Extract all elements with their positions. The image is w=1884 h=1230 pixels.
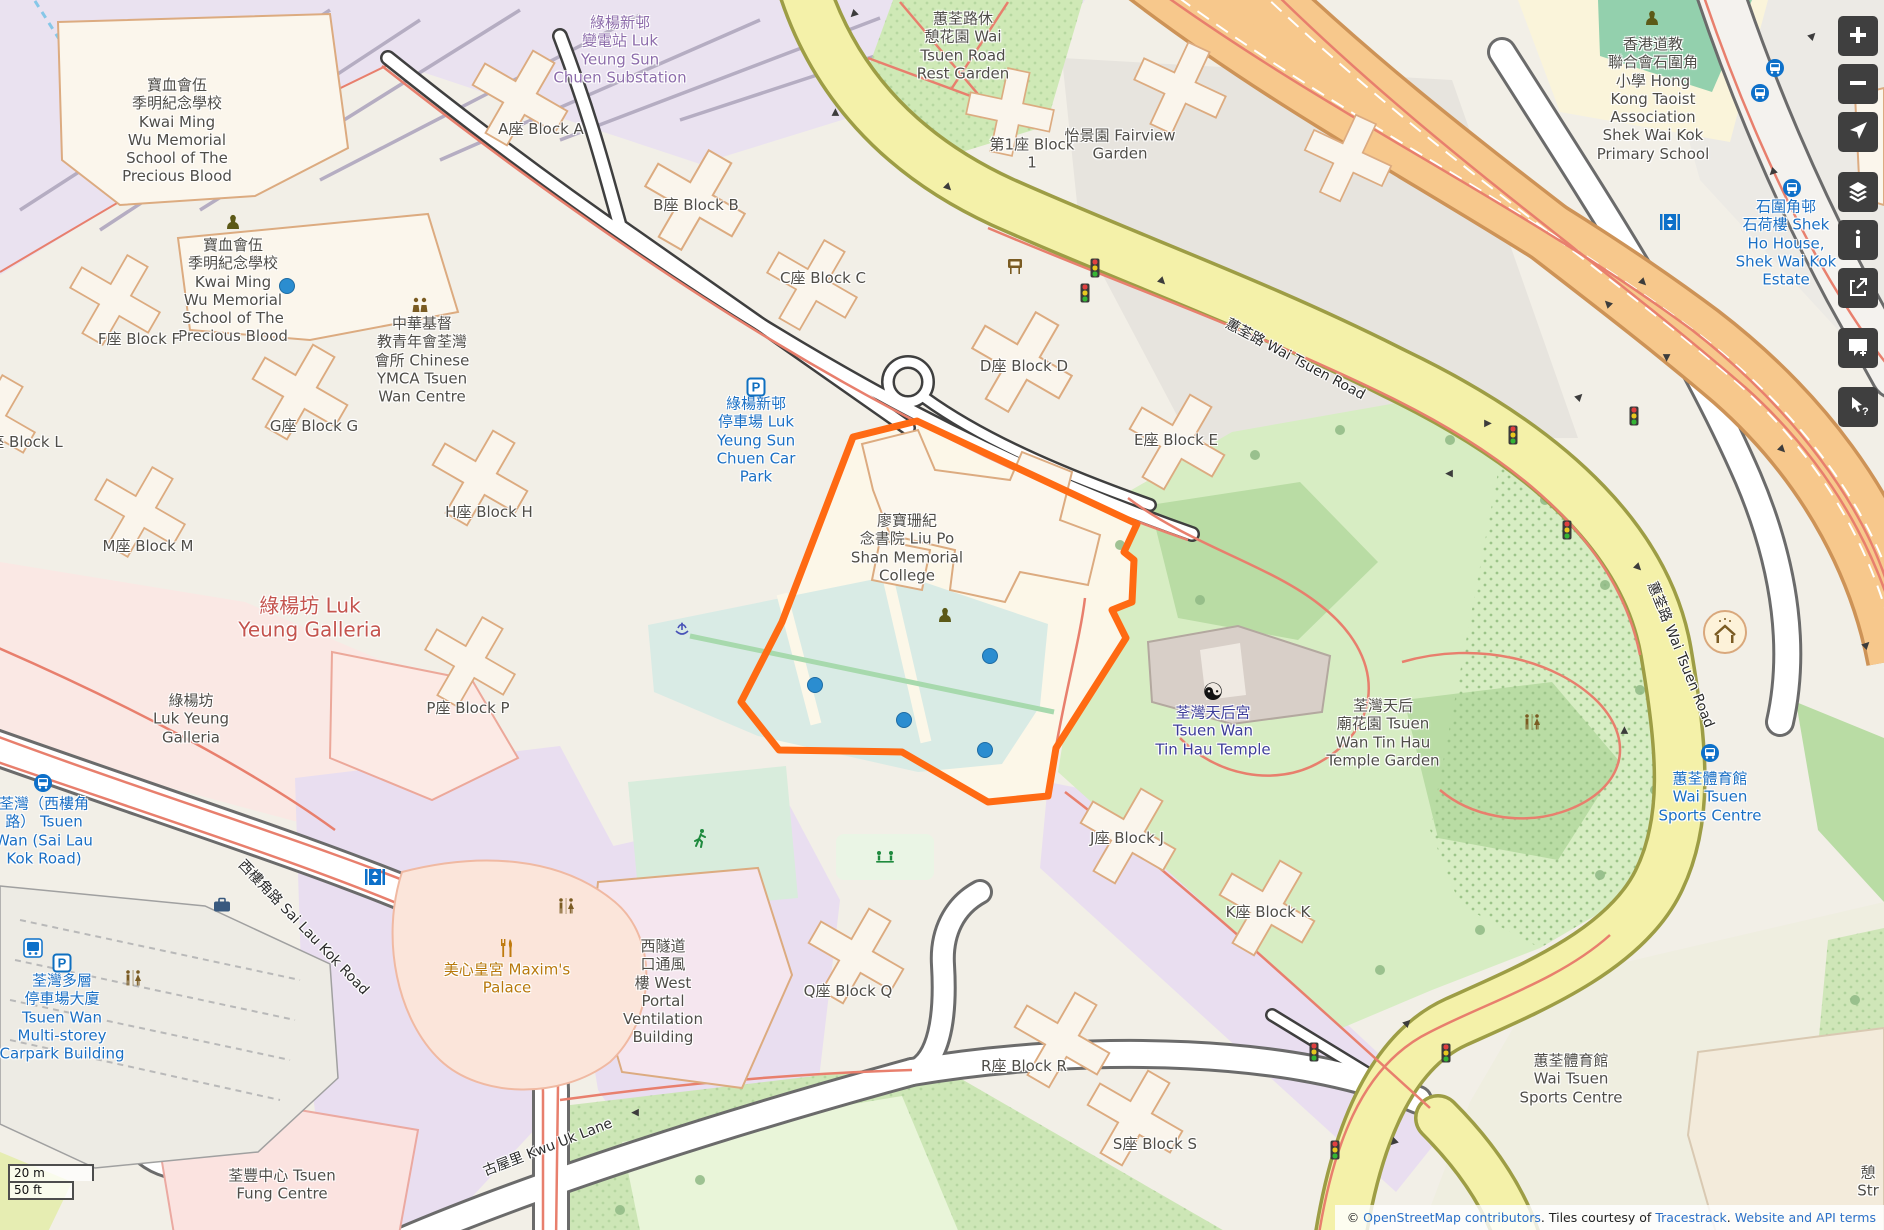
scale-bar: 20 m 50 ft <box>8 1164 94 1200</box>
label-block-l: 座 Block L <box>0 433 63 451</box>
restaurant-icon <box>499 939 515 957</box>
yin-yang-icon: ☯ <box>1202 680 1224 704</box>
label-block-s: S座 Block S <box>1113 1135 1197 1153</box>
label-block-e: E座 Block E <box>1134 431 1218 449</box>
map-marker-dot <box>279 278 295 294</box>
traffic-signal-icon <box>1563 521 1572 540</box>
traffic-signal-icon <box>1331 1141 1340 1160</box>
bus-stop-icon <box>1750 83 1770 103</box>
school-icon <box>936 607 954 623</box>
noticeboard-icon <box>1007 258 1023 274</box>
label-shek-ho-house: 石圍角邨石荷樓 ShekHo House,Shek Wai KokEstate <box>1736 197 1837 288</box>
label-block-m: M座 Block M <box>103 537 194 555</box>
label-taoist-primary-school: 香港道教聯合會石圍角小學 HongKong TaoistAssociationS… <box>1597 35 1710 163</box>
scale-imperial: 50 ft <box>8 1181 74 1200</box>
oneway-arrow-icon: ▶ <box>1661 354 1671 362</box>
label-substation: 綠楊新邨變電站 LukYeung SunChuen Substation <box>553 13 686 86</box>
label-partial-street: 憩Str <box>1857 1164 1879 1201</box>
label-block-g: G座 Block G <box>270 417 358 435</box>
attribution-bar: © OpenStreetMap contributors. Tiles cour… <box>1335 1205 1884 1230</box>
svg-text:P: P <box>58 956 67 971</box>
school-icon <box>224 214 242 230</box>
query-features-button[interactable]: ? <box>1838 387 1878 427</box>
add-note-button[interactable] <box>1838 328 1878 368</box>
parking-icon: P <box>747 378 766 397</box>
note-bubble-icon <box>1847 336 1869 361</box>
label-liu-po-shan-college: 廖寶珊紀念書院 Liu PoShan MemorialCollege <box>851 511 963 584</box>
label-luk-yeung-car-park: 綠楊新邨停車場 LukYeung SunChuen CarPark <box>717 394 796 485</box>
label-block-c: C座 Block C <box>780 269 866 287</box>
label-block-f: F座 Block F <box>98 330 180 348</box>
layers-button[interactable] <box>1838 172 1878 212</box>
traffic-signal-icon <box>1442 1044 1451 1063</box>
svg-text:P: P <box>752 380 761 395</box>
label-tin-hau-temple-garden: 荃灣天后廟花園 TsuenWan Tin HauTemple Garden <box>1326 696 1439 769</box>
shelter-icon <box>1702 609 1748 655</box>
label-west-portal-ventilation: 西隧道口通風樓 WestPortalVentilationBuilding <box>623 937 703 1047</box>
scale-metric: 20 m <box>8 1164 94 1181</box>
label-block-k: K座 Block K <box>1226 903 1311 921</box>
oneway-arrow-icon: ▶ <box>1445 468 1453 478</box>
playground-icon <box>874 848 896 864</box>
map-marker-dot <box>807 677 823 693</box>
attribution-middle: . Tiles courtesy of <box>1541 1210 1655 1225</box>
show-my-location-button[interactable] <box>1838 112 1878 152</box>
zoom-in-button[interactable] <box>1838 16 1878 56</box>
map-key-button[interactable] <box>1838 220 1878 260</box>
community-centre-icon <box>409 297 431 313</box>
label-block-d: D座 Block D <box>980 357 1068 375</box>
zoom-out-button[interactable] <box>1838 64 1878 104</box>
traffic-signal-icon <box>1630 407 1639 426</box>
fountain-icon <box>672 621 692 637</box>
osm-contributors-link[interactable]: OpenStreetMap contributors <box>1363 1210 1541 1225</box>
label-block-r: R座 Block R <box>981 1057 1067 1075</box>
label-wai-tsuen-sports-centre-stop: 蕙荃體育館Wai TsuenSports Centre <box>1658 770 1761 825</box>
bus-stop-icon <box>1765 58 1785 78</box>
locate-arrow-icon <box>1847 120 1869 145</box>
map-marker-dot <box>982 648 998 664</box>
elevator-icon <box>365 869 385 885</box>
running-track-icon <box>691 828 709 848</box>
traffic-signal-icon <box>1091 259 1100 278</box>
traffic-signal-icon <box>1509 426 1518 445</box>
attribution-prefix: © <box>1347 1210 1363 1225</box>
attribution-separator: . <box>1727 1210 1735 1225</box>
label-block-q: Q座 Block Q <box>804 982 893 1000</box>
map-viewport[interactable]: 寶血會伍季明紀念學校Kwai MingWu MemorialSchool of … <box>0 0 1884 1230</box>
tracestrack-link[interactable]: Tracestrack <box>1655 1210 1726 1225</box>
label-multistorey-carpark: 荃灣多層停車場大廈Tsuen WanMulti-storeyCarpark Bu… <box>0 971 125 1062</box>
label-tsuen-fung-centre: 荃豐中心 TsuenFung Centre <box>228 1167 336 1204</box>
oneway-arrow-icon: ▶ <box>831 108 841 116</box>
svg-text:?: ? <box>1862 406 1869 417</box>
label-ymca: 中華基督教青年會荃灣會所 ChineseYMCA TsuenWan Centre <box>375 314 470 405</box>
label-school-kwai-ming-north: 寶血會伍季明紀念學校Kwai MingWu MemorialSchool of … <box>122 76 232 186</box>
terms-link[interactable]: Website and API terms <box>1735 1210 1876 1225</box>
minus-icon <box>1847 72 1869 97</box>
label-block-a: A座 Block A <box>498 120 584 138</box>
info-icon <box>1847 228 1869 253</box>
elevator-icon <box>1660 214 1680 230</box>
bus-stop-icon <box>1782 178 1802 198</box>
layers-icon <box>1847 180 1869 205</box>
plus-icon <box>1847 24 1869 49</box>
oneway-arrow-icon: ▶ <box>631 1107 639 1117</box>
bus-stop-icon <box>33 773 53 793</box>
label-fairview-garden: 怡景園 FairviewGarden <box>1064 127 1175 164</box>
label-school-kwai-ming-south: 寶血會伍季明紀念學校Kwai MingWu MemorialSchool of … <box>178 236 288 346</box>
label-tsuen-wan-sai-lau-kok-stop: 荃灣（西樓角路） TsuenWan (Sai LauKok Road) <box>0 794 93 867</box>
label-luk-yeung-galleria-bldg: 綠楊坊Luk YeungGalleria <box>153 692 229 747</box>
label-rest-garden: 蕙荃路休憩花園 WaiTsuen RoadRest Garden <box>917 9 1009 82</box>
map-marker-dot <box>896 712 912 728</box>
label-tin-hau-temple: 荃灣天后宮Tsuen WanTin Hau Temple <box>1155 704 1270 759</box>
bus-stop-icon <box>1700 743 1720 763</box>
share-button[interactable] <box>1838 268 1878 308</box>
bus-station-icon <box>23 938 43 958</box>
label-maxims-palace: 美心皇宮 Maxim'sPalace <box>444 961 571 998</box>
label-luk-yeung-galleria-mall: 綠楊坊 LukYeung Galleria <box>238 594 381 643</box>
traffic-signal-icon <box>1081 284 1090 303</box>
label-wai-tsuen-sports-centre: 蕙荃體育館Wai TsuenSports Centre <box>1519 1052 1622 1107</box>
label-block-1: 第1座 Block1 <box>990 136 1075 173</box>
map-marker-dot <box>977 742 993 758</box>
label-block-j: J座 Block J <box>1090 829 1164 847</box>
share-icon <box>1847 276 1869 301</box>
query-cursor-icon: ? <box>1847 395 1869 420</box>
label-block-h: H座 Block H <box>445 503 533 521</box>
parking-icon: P <box>53 954 72 973</box>
toilets-icon <box>1521 714 1543 730</box>
label-block-p: P座 Block P <box>426 699 509 717</box>
label-block-b: B座 Block B <box>653 196 739 214</box>
oneway-arrow-icon: ▶ <box>1620 726 1630 734</box>
toilets-icon <box>555 898 577 914</box>
oneway-arrow-icon: ▶ <box>1484 419 1492 429</box>
school-icon <box>1643 10 1661 26</box>
traffic-signal-icon <box>1310 1043 1319 1062</box>
toilets-icon <box>122 970 144 986</box>
luggage-icon <box>213 898 231 913</box>
